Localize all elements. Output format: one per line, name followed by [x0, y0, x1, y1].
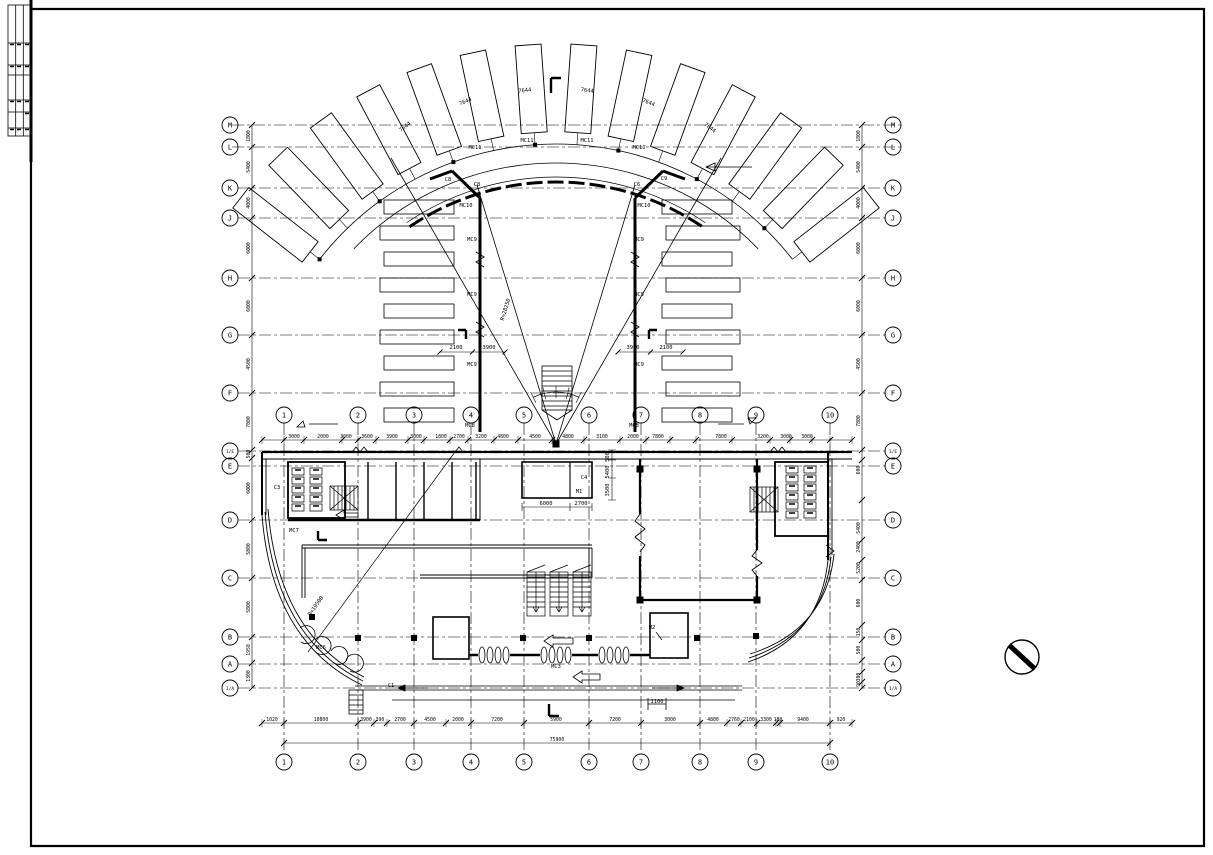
axis-1-top-label: 1 — [282, 412, 286, 420]
axis-1/E-left-label: 1/E — [226, 449, 235, 455]
right-curved-curtain — [748, 459, 834, 662]
plan-label-7644: 7644 — [703, 122, 717, 135]
north-symbol — [1005, 640, 1039, 674]
plan-label-c8: C8 — [445, 177, 452, 183]
plan-label-mc9: MC9 — [467, 237, 477, 243]
plan-label-mc7: MC7 — [289, 528, 299, 534]
dim-label: 5800 — [246, 543, 252, 555]
seat-row — [662, 200, 732, 214]
dim-label: 500 — [246, 450, 252, 459]
axis-F-left-label: F — [228, 390, 232, 398]
dim-label: 600 — [856, 466, 862, 475]
dim-label: 7200 — [491, 717, 503, 723]
axis-M-right-label: M — [891, 122, 895, 130]
fan-radial-tick — [339, 220, 347, 229]
axis-6-bottom-label: 6 — [587, 759, 591, 767]
dim-label: 1800 — [435, 434, 447, 440]
axis-K-left-label: K — [228, 185, 233, 193]
plan-label-2100: 2100 — [450, 345, 463, 351]
plan-label-3900: 3900 — [627, 345, 640, 351]
title-block-text-marks — [10, 45, 29, 130]
dim-label: 3200 — [475, 434, 487, 440]
dim-label: 5900 — [550, 717, 562, 723]
dim-label: 300 — [856, 673, 862, 682]
dim-label: 2400 — [856, 541, 862, 553]
plan-label-c9: C9 — [661, 176, 668, 182]
seat-row — [662, 356, 732, 370]
fan-radial-tick — [491, 139, 493, 151]
axis-2-bottom-label: 2 — [356, 759, 360, 767]
main-stair-triple — [527, 565, 591, 616]
dim-label: 1300 — [246, 670, 252, 682]
plan-walls — [262, 78, 1039, 716]
axis-A-left-label: A — [228, 661, 233, 669]
fan-arc — [409, 182, 702, 227]
dim-label: 7200 — [609, 717, 621, 723]
axis-F-right-label: F — [891, 390, 895, 398]
plan-label-2100: 2100 — [660, 345, 673, 351]
axis-J-left-label: J — [228, 215, 232, 223]
plan-label-2700: 2700 — [575, 501, 588, 507]
axis-3-top-label: 3 — [412, 412, 416, 420]
floor-plan-canvas: MMLLKKJJHHGGFF1/E1/EEEDDCCBBAA1/A1/A1122… — [0, 0, 1213, 855]
plan-label-mc3: MC3 — [551, 664, 561, 670]
axis-D-right-label: D — [891, 517, 895, 525]
dim-label: 2700 — [453, 434, 465, 440]
dim-label: 500 — [856, 646, 862, 655]
dim-label: 5400 — [246, 161, 252, 173]
dim-label: 4000 — [856, 197, 862, 209]
dim-label: 4500 — [424, 717, 436, 723]
seat-row — [666, 278, 740, 292]
fan-panel — [233, 187, 318, 262]
dim-label: 6000 — [246, 242, 252, 254]
right-toilet-block — [775, 462, 828, 536]
dim-label: 390 — [376, 717, 385, 723]
seat-row — [380, 278, 454, 292]
seat-row — [666, 382, 740, 396]
dim-label: 3000 — [664, 717, 676, 723]
section-markers — [318, 78, 657, 716]
seat-row — [384, 356, 454, 370]
seat-row — [380, 382, 454, 396]
dim-label: 3600 — [361, 434, 373, 440]
left-stair — [330, 486, 358, 510]
dim-label: 5400 — [856, 161, 862, 173]
room-partitions — [368, 462, 476, 520]
dim-label: 5800 — [246, 601, 252, 613]
plan-label-mc8: MC8 — [465, 423, 475, 429]
dim-label: 3000 — [410, 434, 422, 440]
dim-total-label: 75900 — [550, 737, 565, 743]
axis-H-left-label: H — [228, 275, 232, 283]
seat-row — [666, 226, 740, 240]
axis-10-top-label: 10 — [826, 412, 834, 420]
plan-label-c3: C3 — [274, 485, 281, 491]
dim-label: 3900 — [386, 434, 398, 440]
entry-platform — [349, 685, 742, 714]
axis-4-top-label: 4 — [469, 412, 473, 420]
axis-7-top-label: 7 — [639, 412, 643, 420]
seat-row — [384, 304, 454, 318]
plan-label-r=28250: R=28250 — [500, 298, 512, 321]
dim-label: 4500 — [856, 358, 862, 370]
title-block-outline — [8, 5, 31, 136]
plan-label-mc10: MC10 — [460, 203, 473, 209]
axis-5-top-label: 5 — [522, 412, 526, 420]
dim-label: 6000 — [856, 242, 862, 254]
dim-label: 1950 — [246, 644, 252, 656]
axis-L-right-label: L — [891, 144, 895, 152]
m2-leader — [656, 632, 662, 640]
dim-label: 6000 — [246, 482, 252, 494]
dim-label: 7800 — [652, 434, 664, 440]
seat-row — [384, 252, 454, 266]
plan-label-mc10: MC10 — [638, 203, 651, 209]
fan-radial-tick — [410, 169, 416, 180]
axis-1/A-left-label: 1/A — [226, 686, 235, 692]
dim-label: 3900 — [360, 717, 372, 723]
fan-radial-tick — [792, 252, 801, 259]
axis-9-bottom-label: 9 — [754, 759, 758, 767]
dim-label: 4000 — [246, 197, 252, 209]
dim-label: 6000 — [246, 300, 252, 312]
axis-8-top-label: 8 — [698, 412, 702, 420]
dim-label: 2760 — [728, 717, 740, 723]
plan-label-3900: 3900 — [483, 345, 496, 351]
plan-label-6000: 6000 — [540, 501, 553, 507]
dim-label: 3100 — [596, 434, 608, 440]
dim-label: 2000 — [452, 717, 464, 723]
axis-D-left-label: D — [228, 517, 232, 525]
plan-label-mc9: MC9 — [467, 362, 477, 368]
plan-label-3500: 3500 — [605, 484, 611, 497]
axis-7-bottom-label: 7 — [639, 759, 643, 767]
dim-label: 3200 — [757, 434, 769, 440]
plan-label-5400: 5400 — [605, 466, 611, 479]
door-leaves — [479, 647, 629, 663]
dim-label: 2700 — [394, 717, 406, 723]
dim-label: 3000 — [288, 434, 300, 440]
axis-2-top-label: 2 — [356, 412, 360, 420]
apex-node — [553, 441, 559, 447]
right-room — [635, 459, 762, 603]
fan-panel — [794, 187, 879, 262]
plan-label-7644: 7644 — [641, 98, 655, 108]
dim-label: 5400 — [856, 522, 862, 534]
fan-radial-tick — [659, 151, 663, 162]
dim-label: 5200 — [856, 562, 862, 574]
dim-label: 4500 — [246, 358, 252, 370]
dim-label: 150 — [856, 628, 862, 637]
axis-B-left-label: B — [228, 634, 232, 642]
axis-3-bottom-label: 3 — [412, 759, 416, 767]
seat-row — [662, 304, 732, 318]
plan-label-7644: 7644 — [580, 87, 594, 95]
axis-E-left-label: E — [228, 463, 232, 471]
plan-label-7644: 7644 — [518, 87, 532, 95]
axis-M-left-label: M — [228, 122, 232, 130]
dim-label: 2000 — [627, 434, 639, 440]
plan-label-mc11: MC11 — [633, 145, 646, 151]
plan-label-7644: 7644 — [398, 121, 412, 134]
fan-radial-tick — [577, 133, 578, 145]
dim-label: 6000 — [856, 300, 862, 312]
axis-10-bottom-label: 10 — [826, 759, 834, 767]
plan-label-c4: C4 — [581, 475, 588, 481]
axis-C-left-label: C — [228, 575, 232, 583]
dim-label: 7800 — [856, 415, 862, 427]
fan-arc — [354, 163, 758, 249]
axis-1-bottom-label: 1 — [282, 759, 286, 767]
axis-L-left-label: L — [228, 144, 232, 152]
axis-A-right-label: A — [891, 661, 896, 669]
dim-label: 3000 — [340, 434, 352, 440]
vestibule-right — [650, 613, 688, 658]
dim-label: 4800 — [497, 434, 509, 440]
plan-label-mc11: MC11 — [469, 145, 482, 151]
dim-label: 2000 — [317, 434, 329, 440]
dim-label: 4800 — [707, 717, 719, 723]
vestibule-left — [433, 617, 469, 659]
dim-label: 600 — [856, 599, 862, 608]
seat-row — [666, 330, 740, 344]
axis-E-right-label: E — [891, 463, 895, 471]
seat-row — [380, 330, 454, 344]
dim-label: 1800 — [856, 130, 862, 142]
plan-label-mc11: MC11 — [581, 138, 594, 144]
dim-label: 4800 — [562, 434, 574, 440]
dim-label: 9400 — [797, 717, 809, 723]
plan-label-500: 500 — [605, 452, 611, 462]
dim-label: 7800 — [246, 416, 252, 428]
dim-label: 180 — [774, 717, 783, 723]
axis-4-bottom-label: 4 — [469, 759, 473, 767]
fan-radial-tick — [732, 192, 739, 202]
axis-G-left-label: G — [228, 332, 232, 340]
dim-label: 90 — [856, 681, 862, 687]
axis-B-right-label: B — [891, 634, 895, 642]
axis-6-top-label: 6 — [587, 412, 591, 420]
axis-1/E-right-label: 1/E — [889, 449, 898, 455]
wall-break-zigzags — [476, 252, 639, 337]
dim-label: 7800 — [715, 434, 727, 440]
left-toilet-block — [288, 462, 345, 518]
hall-platform-edges — [302, 545, 592, 598]
axis-8-bottom-label: 8 — [698, 759, 702, 767]
plan-label-mc11: MC11 — [521, 138, 534, 144]
dim-label: 3000 — [780, 434, 792, 440]
dim-label: 3300 — [760, 717, 772, 723]
dim-label: 4500 — [529, 434, 541, 440]
title-block — [8, 5, 31, 136]
fan-panel — [650, 64, 705, 156]
axis-5-bottom-label: 5 — [522, 759, 526, 767]
dim-label: 920 — [837, 717, 846, 723]
dim-label: 3000 — [801, 434, 813, 440]
drawing-sheet: MMLLKKJJHHGGFF1/E1/EEEDDCCBBAA1/A1/A1122… — [0, 0, 1213, 855]
axis-K-right-label: K — [891, 185, 896, 193]
dim-label: 1020 — [266, 717, 278, 723]
right-stair — [750, 487, 778, 512]
axis-H-right-label: H — [891, 275, 895, 283]
axis-J-right-label: J — [891, 215, 895, 223]
axis-C-right-label: C — [891, 575, 895, 583]
fan-panel — [407, 64, 462, 156]
seat-row — [380, 226, 454, 240]
seat-row — [384, 408, 454, 422]
axis-1/A-right-label: 1/A — [889, 686, 898, 692]
plan-label-m1: M1 — [576, 489, 583, 495]
axis-G-right-label: G — [891, 332, 895, 340]
fan-panel — [460, 50, 504, 141]
dim-label: 10800 — [314, 717, 329, 723]
fan-panel — [608, 50, 652, 141]
dim-label: 1800 — [246, 130, 252, 142]
seat-row — [662, 252, 732, 266]
dim-label: 2100 — [743, 717, 755, 723]
title-block-grid — [8, 5, 31, 136]
